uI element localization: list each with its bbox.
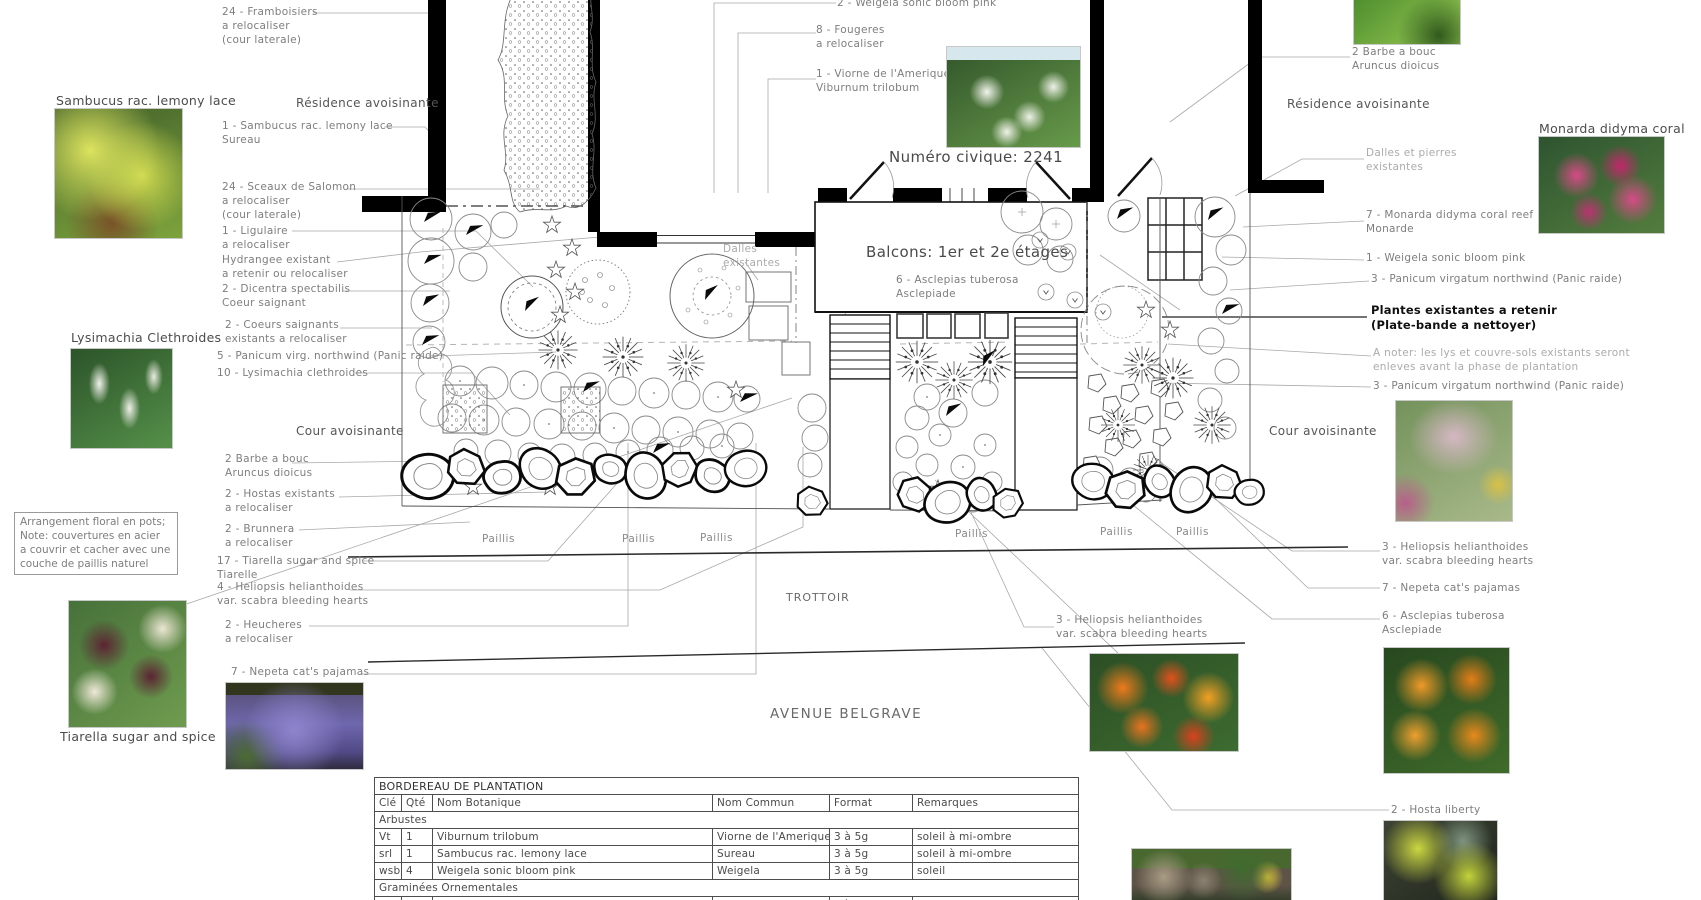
callout-fougeres: 8 - Fougeres a relocaliser	[816, 24, 885, 52]
callout-tiarella17: 17 - Tiarella sugar and spice Tiarelle	[217, 555, 374, 583]
paillis-label-3: Paillis	[700, 532, 733, 544]
callout-panicum5: 5 - Panicum virg. northwind (Panic raide…	[217, 350, 443, 364]
table-cell: soleil	[913, 897, 1079, 900]
paillis-label-2: Paillis	[622, 533, 655, 545]
paillis-label-6: Paillis	[1176, 526, 1209, 538]
table-cell: 1 à 2g	[830, 897, 913, 900]
callout-viorne: 1 - Viorne de l'Amerique Viburnum trilob…	[816, 68, 950, 96]
callout-sambucus: 1 - Sambucus rac. lemony lace Sureau	[222, 120, 393, 148]
lysimachia-photo-label: Lysimachia Clethroides	[71, 330, 221, 345]
callout-weigela1: 1 - Weigela sonic bloom pink	[1366, 252, 1525, 266]
callout-plantes-existantes: Plantes existantes a retenir (Plate-band…	[1371, 303, 1557, 334]
table-cell: Weigela	[713, 863, 830, 880]
aruncus-photo	[1354, 0, 1460, 44]
table-cell: Arbustes	[375, 812, 1079, 829]
table-cell: Clé	[375, 795, 402, 812]
hosta-photo	[1384, 821, 1497, 900]
callout-barbe-right: 2 Barbe a bouc Aruncus dioicus	[1352, 46, 1439, 74]
callout-panicum3-a: 3 - Panicum virgatum northwind (Panic ra…	[1371, 273, 1622, 287]
nepeta-photo	[226, 683, 363, 769]
landscape-plan-page: 24 - Framboisiers a relocaliser (cour la…	[0, 0, 1701, 900]
sambucus-photo-label: Sambucus rac. lemony lace	[56, 93, 236, 108]
planting-schedule-table: BORDEREAU DE PLANTATIONCléQtéNom Botaniq…	[374, 777, 1079, 900]
callout-dalles-existantes: Dalles existantes	[723, 243, 780, 271]
paillis-label-4: Paillis	[955, 528, 988, 540]
callout-hosta2: 2 - Hosta liberty	[1391, 804, 1481, 818]
avenue-label: AVENUE BELGRAVE	[770, 706, 922, 722]
table-cell: 1	[402, 846, 433, 863]
callout-brunnera: 2 - Brunnera a relocaliser	[225, 523, 294, 551]
tiarella-photo-label: Tiarella sugar and spice	[60, 729, 216, 744]
table-cell: Qté	[402, 795, 433, 812]
callout-nepeta-left: 7 - Nepeta cat's pajamas	[231, 666, 369, 680]
table-head-row: CléQtéNom BotaniqueNom CommunFormatRemar…	[375, 795, 1079, 812]
callout-dalles-pierres: Dalles et pierres existantes	[1366, 147, 1457, 175]
table-sec-row: Arbustes	[375, 812, 1079, 829]
sambucus-photo	[55, 109, 182, 238]
asclepias-photo	[1384, 648, 1509, 773]
table-cell: Viburnum trilobum	[433, 829, 713, 846]
civic-number-label: Numéro civique: 2241	[889, 148, 1063, 166]
existing-slabs	[746, 272, 810, 375]
table-row: Vt1Viburnum trilobumViorne de l'Amerique…	[375, 829, 1079, 846]
table-cell: 1	[402, 829, 433, 846]
table-cell: Weigela sonic bloom pink	[433, 863, 713, 880]
callout-framboisiers: 24 - Framboisiers a relocaliser (cour la…	[222, 6, 318, 48]
callout-heliopsis3-right: 3 - Heliopsis helianthoides var. scabra …	[1382, 541, 1533, 569]
callout-weigela2: 2 - Weigela sonic bloom pink	[837, 0, 996, 11]
speckled-hedge	[498, 0, 596, 212]
callout-hostas: 2 - Hostas existants a relocaliser	[225, 488, 335, 516]
callout-asclepias-right: 6 - Asclepias tuberosa Asclepiade	[1382, 610, 1505, 638]
callout-heliopsis4: 4 - Heliopsis helianthoides var. scabra …	[217, 581, 368, 609]
table-cell: soleil à mi-ombre	[913, 829, 1079, 846]
table-cell: pvn	[375, 897, 402, 900]
callout-dicentra: 2 - Dicentra spectabilis Coeur saignant	[222, 283, 350, 311]
stairs-right	[1015, 318, 1077, 510]
table-cell: Nom Botanique	[433, 795, 713, 812]
stairs-left	[830, 315, 890, 509]
table-cell: Graminées Ornementales	[375, 880, 1079, 897]
table-cell: BORDEREAU DE PLANTATION	[375, 778, 1079, 795]
tiarella-photo	[69, 601, 186, 727]
table-cell: Format	[830, 795, 913, 812]
callout-heliopsis3-mid: 3 - Heliopsis helianthoides var. scabra …	[1056, 614, 1207, 642]
table-row: pvn11Panicum virgatum northwindPanic rai…	[375, 897, 1079, 900]
callout-heucheres: 2 - Heucheres a relocaliser	[225, 619, 302, 647]
table-cell: wsb	[375, 863, 402, 880]
residence-left-label: Résidence avoisinante	[296, 96, 439, 110]
callout-coeurs: 2 - Coeurs saignants existants a relocal…	[225, 319, 347, 347]
table-cell: srl	[375, 846, 402, 863]
table-cell: 4	[402, 863, 433, 880]
rock-garden-photo	[1132, 849, 1291, 900]
callout-barbe-left: 2 Barbe a bouc Aruncus dioicus	[225, 453, 312, 481]
callout-ligulaire: 1 - Ligulaire a relocaliser	[222, 225, 290, 253]
callout-lysimachia10: 10 - Lysimachia clethroides	[217, 367, 368, 381]
table-cell: 3 à 5g	[830, 846, 913, 863]
balconies-label: Balcons: 1er et 2e étages	[866, 243, 1068, 261]
callout-sceaux: 24 - Sceaux de Salomon a relocaliser (co…	[222, 181, 356, 223]
callout-a-noter: A noter: les lys et couvre-sols existant…	[1373, 347, 1630, 375]
table-cell: Sambucus rac. lemony lace	[433, 846, 713, 863]
panicum-photo	[1396, 401, 1512, 521]
table-sec-row: Graminées Ornementales	[375, 880, 1079, 897]
table-cell: Panic raide	[713, 897, 830, 900]
table-cell: Vt	[375, 829, 402, 846]
table-cell: Sureau	[713, 846, 830, 863]
table-cell: 3 à 5g	[830, 829, 913, 846]
table-row: srl1Sambucus rac. lemony laceSureau3 à 5…	[375, 846, 1079, 863]
table-cell: Viorne de l'Amerique	[713, 829, 830, 846]
viburnum-photo	[947, 47, 1080, 147]
cour-left-label: Cour avoisinante	[296, 424, 404, 438]
paillis-label-1: Paillis	[482, 533, 515, 545]
paillis-label-5: Paillis	[1100, 526, 1133, 538]
sidewalk-lines	[348, 547, 1348, 662]
table-cell: Nom Commun	[713, 795, 830, 812]
table-row: wsb4Weigela sonic bloom pinkWeigela3 à 5…	[375, 863, 1079, 880]
table-title-row: BORDEREAU DE PLANTATION	[375, 778, 1079, 795]
callout-asclepias-mid: 6 - Asclepias tuberosa Asclepiade	[896, 274, 1019, 302]
table-cell: soleil à mi-ombre	[913, 846, 1079, 863]
table-cell: Remarques	[913, 795, 1079, 812]
pavers	[897, 313, 1008, 338]
table-cell: 3 à 5g	[830, 863, 913, 880]
slab-grid	[1148, 198, 1202, 280]
heliopsis-photo	[1090, 654, 1238, 751]
residence-right-label: Résidence avoisinante	[1287, 97, 1430, 111]
callout-monarda7: 7 - Monarda didyma coral reef Monarde	[1366, 209, 1533, 237]
callout-nepeta-right: 7 - Nepeta cat's pajamas	[1382, 582, 1520, 596]
trottoir-label: TROTTOIR	[786, 591, 850, 604]
note-box: Arrangement floral en pots; Note: couver…	[14, 512, 178, 575]
monarda-photo	[1539, 137, 1664, 233]
callout-panicum3-b: 3 - Panicum virgatum northwind (Panic ra…	[1373, 380, 1624, 394]
cour-right-label: Cour avoisinante	[1269, 424, 1377, 438]
table-cell: Panicum virgatum northwind	[433, 897, 713, 900]
lysimachia-photo	[71, 349, 172, 448]
table-cell: soleil	[913, 863, 1079, 880]
callout-hydrangee: Hydrangee existant a retenir ou relocali…	[222, 254, 348, 282]
table-cell: 11	[402, 897, 433, 900]
